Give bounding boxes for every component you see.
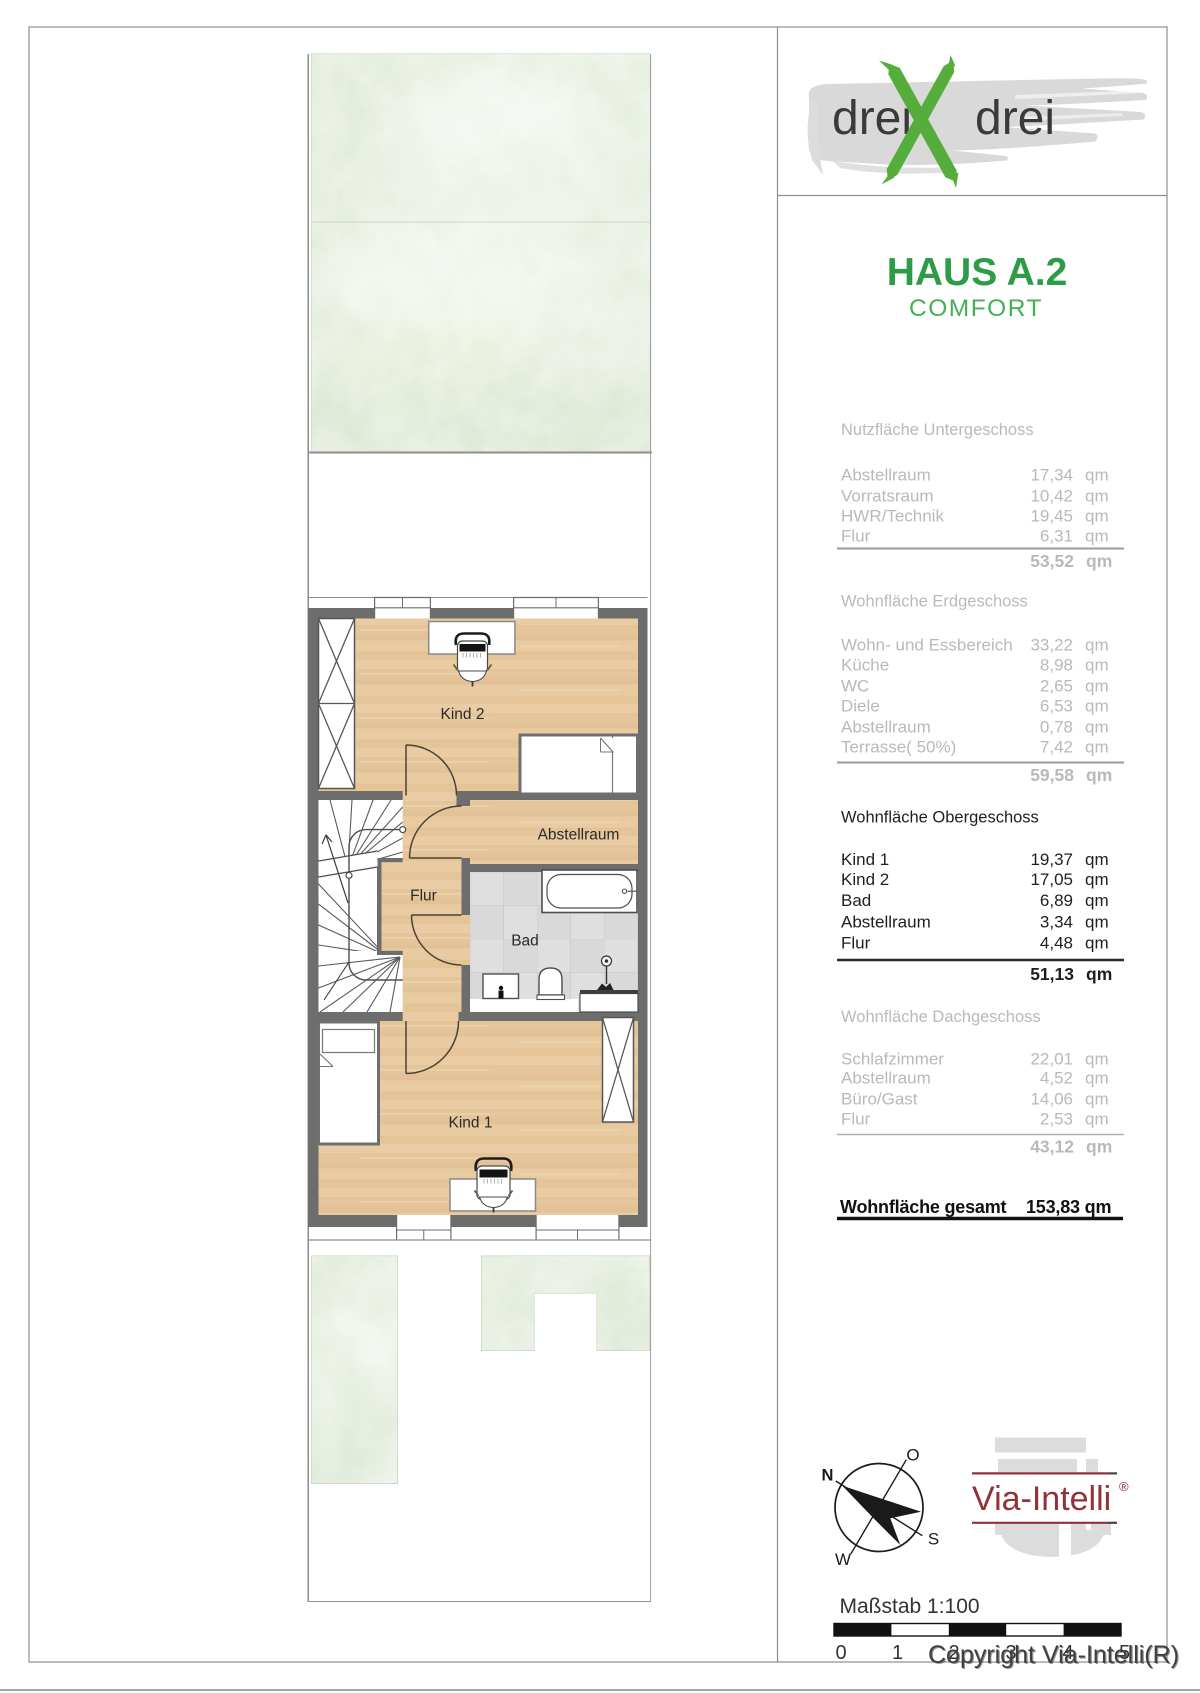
svg-text:Flur: Flur (841, 527, 871, 546)
svg-text:qm: qm (1085, 656, 1109, 675)
svg-text:qm: qm (1085, 677, 1109, 696)
svg-text:qm: qm (1085, 870, 1109, 889)
svg-text:S: S (928, 1530, 939, 1549)
svg-text:7,42: 7,42 (1040, 738, 1073, 757)
svg-text:drei: drei (832, 92, 912, 145)
svg-text:drei: drei (975, 92, 1055, 145)
svg-text:Bad: Bad (841, 891, 871, 910)
svg-text:Kind 2: Kind 2 (841, 870, 889, 889)
svg-text:qm: qm (1085, 891, 1109, 910)
svg-text:4,48: 4,48 (1040, 934, 1073, 953)
svg-text:qm: qm (1085, 527, 1109, 546)
svg-text:17,34: 17,34 (1030, 466, 1073, 485)
svg-text:4,52: 4,52 (1040, 1069, 1073, 1088)
svg-text:Wohnfläche gesamt: Wohnfläche gesamt (840, 1197, 1007, 1217)
svg-text:Kind 1: Kind 1 (841, 850, 889, 869)
svg-text:59,58: 59,58 (1030, 765, 1074, 785)
svg-text:6,53: 6,53 (1040, 697, 1073, 716)
svg-text:22,01: 22,01 (1030, 1050, 1073, 1069)
svg-text:qm: qm (1086, 765, 1112, 785)
svg-text:N: N (822, 1467, 834, 1485)
svg-text:W: W (835, 1550, 851, 1569)
svg-text:51,13: 51,13 (1030, 964, 1074, 984)
svg-text:HWR/Technik: HWR/Technik (841, 507, 944, 526)
svg-text:qm: qm (1085, 1090, 1109, 1109)
svg-text:Büro/Gast: Büro/Gast (841, 1090, 918, 1109)
svg-text:10,42: 10,42 (1030, 487, 1073, 506)
svg-text:Abstellraum: Abstellraum (841, 718, 931, 737)
svg-text:qm: qm (1086, 964, 1112, 984)
svg-text:Flur: Flur (841, 934, 871, 953)
svg-text:Wohnfläche Dachgeschoss: Wohnfläche Dachgeschoss (841, 1008, 1041, 1026)
svg-text:6,31: 6,31 (1040, 527, 1073, 546)
svg-text:qm: qm (1086, 551, 1112, 571)
svg-text:Abstellraum: Abstellraum (841, 1069, 931, 1088)
svg-text:WC: WC (841, 677, 869, 696)
svg-text:qm: qm (1085, 718, 1109, 737)
svg-text:0,78: 0,78 (1040, 718, 1073, 737)
svg-text:qm: qm (1085, 1110, 1109, 1129)
svg-text:qm: qm (1085, 507, 1109, 526)
svg-text:53,52: 53,52 (1030, 551, 1074, 571)
svg-text:qm: qm (1085, 934, 1109, 953)
svg-text:43,12: 43,12 (1030, 1137, 1074, 1157)
svg-text:Wohnfläche Erdgeschoss: Wohnfläche Erdgeschoss (841, 593, 1028, 611)
svg-text:1: 1 (892, 1642, 903, 1664)
svg-text:qm: qm (1086, 1137, 1112, 1157)
svg-text:qm: qm (1085, 636, 1109, 655)
svg-text:153,83 qm: 153,83 qm (1026, 1197, 1111, 1217)
svg-text:Copyright Via-Intelli(R): Copyright Via-Intelli(R) (929, 1642, 1180, 1670)
svg-text:Via-Intelli: Via-Intelli (972, 1480, 1111, 1518)
svg-text:3,34: 3,34 (1040, 913, 1073, 932)
svg-text:0: 0 (835, 1642, 846, 1664)
svg-text:Kind 2: Kind 2 (441, 706, 485, 723)
svg-text:Kind 1: Kind 1 (449, 1115, 493, 1132)
svg-text:qm: qm (1085, 1069, 1109, 1088)
svg-text:Nutzfläche Untergeschoss: Nutzfläche Untergeschoss (841, 421, 1034, 439)
svg-text:6,89: 6,89 (1040, 891, 1073, 910)
svg-text:Abstellraum: Abstellraum (538, 827, 620, 844)
svg-text:qm: qm (1085, 1050, 1109, 1069)
svg-text:Schlafzimmer: Schlafzimmer (841, 1050, 944, 1069)
svg-text:®: ® (1119, 1479, 1129, 1494)
svg-text:33,22: 33,22 (1030, 636, 1073, 655)
svg-text:Maßstab 1:100: Maßstab 1:100 (840, 1595, 980, 1618)
svg-text:qm: qm (1085, 487, 1109, 506)
svg-text:Abstellraum: Abstellraum (841, 913, 931, 932)
svg-text:Flur: Flur (841, 1110, 871, 1129)
svg-text:Flur: Flur (410, 888, 437, 905)
svg-text:19,37: 19,37 (1030, 850, 1073, 869)
svg-text:17,05: 17,05 (1030, 870, 1073, 889)
svg-text:qm: qm (1085, 466, 1109, 485)
svg-text:Küche: Küche (841, 656, 889, 675)
svg-text:Vorratsraum: Vorratsraum (841, 487, 934, 506)
svg-text:8,98: 8,98 (1040, 656, 1073, 675)
svg-text:2,53: 2,53 (1040, 1110, 1073, 1129)
svg-text:Wohn- und Essbereich: Wohn- und Essbereich (841, 636, 1013, 655)
svg-text:qm: qm (1085, 738, 1109, 757)
svg-text:19,45: 19,45 (1030, 507, 1073, 526)
svg-text:qm: qm (1085, 697, 1109, 716)
svg-text:Bad: Bad (511, 933, 539, 950)
svg-text:14,06: 14,06 (1030, 1090, 1073, 1109)
svg-text:qm: qm (1085, 913, 1109, 932)
svg-text:Terrasse( 50%): Terrasse( 50%) (841, 738, 956, 757)
svg-text:Wohnfläche Obergeschoss: Wohnfläche Obergeschoss (841, 809, 1039, 827)
svg-text:2,65: 2,65 (1040, 677, 1073, 696)
svg-text:Abstellraum: Abstellraum (841, 466, 931, 485)
svg-text:O: O (906, 1446, 919, 1465)
svg-text:Diele: Diele (841, 697, 880, 716)
svg-text:qm: qm (1085, 850, 1109, 869)
svg-text:HAUS A.2: HAUS A.2 (887, 251, 1068, 294)
svg-text:COMFORT: COMFORT (909, 295, 1043, 322)
